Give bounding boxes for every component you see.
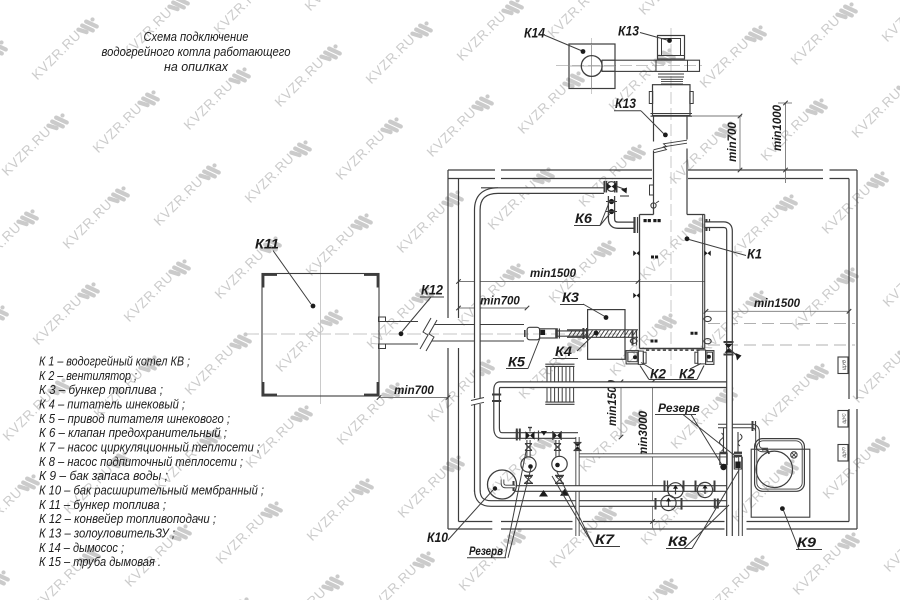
svg-text:на опилках: на опилках bbox=[164, 59, 228, 74]
svg-text:К2: К2 bbox=[650, 367, 666, 382]
svg-text:К 5 – привод питателя шнеково: К 5 – привод питателя шнекового ; bbox=[39, 412, 230, 426]
svg-text:К12: К12 bbox=[421, 283, 443, 298]
svg-text:К10: К10 bbox=[427, 530, 448, 545]
svg-text:К 10 – бак расширительный мем: К 10 – бак расширительный мембранный ; bbox=[39, 483, 264, 497]
svg-text:min1500: min1500 bbox=[530, 268, 577, 280]
svg-text:водогрейного котла работающего: водогрейного котла работающего bbox=[102, 44, 291, 59]
svg-text:К 3 – бункер топлива ;: К 3 – бункер топлива ; bbox=[39, 383, 163, 397]
svg-text:К3: К3 bbox=[562, 290, 580, 305]
svg-text:К5: К5 bbox=[508, 355, 526, 370]
svg-text:К13: К13 bbox=[618, 24, 639, 39]
svg-text:Резерв: Резерв bbox=[469, 544, 503, 558]
svg-text:К2: К2 bbox=[679, 367, 695, 382]
svg-text:Резерв: Резерв bbox=[658, 401, 700, 415]
svg-text:min1500: min1500 bbox=[754, 298, 801, 310]
svg-text:К6: К6 bbox=[575, 211, 593, 226]
svg-text:К 8 – насос подпиточный тепло: К 8 – насос подпиточный теплосети ; bbox=[39, 455, 243, 469]
svg-text:К7: К7 bbox=[595, 532, 616, 547]
svg-text:К11: К11 bbox=[255, 237, 279, 252]
svg-text:К 9 – бак запаса воды ;: К 9 – бак запаса воды ; bbox=[39, 469, 168, 483]
svg-text:К14: К14 bbox=[524, 26, 545, 41]
svg-text:К 7 – насос циркуляционный те: К 7 – насос циркуляционный теплосети ; bbox=[39, 440, 260, 454]
svg-text:К13: К13 bbox=[615, 96, 636, 111]
svg-text:К 11 – бункер топлива ;: К 11 – бункер топлива ; bbox=[39, 498, 166, 512]
svg-text:К 4 – питатель шнековый ;: К 4 – питатель шнековый ; bbox=[39, 397, 185, 411]
svg-text:К 1 – водогрейный котел КВ ;: К 1 – водогрейный котел КВ ; bbox=[39, 355, 190, 369]
svg-text:ЩУС: ЩУС bbox=[842, 413, 847, 424]
svg-text:К 6 – клапан предохранительны: К 6 – клапан предохранительный ; bbox=[39, 426, 227, 440]
svg-text:К4: К4 bbox=[555, 344, 573, 359]
svg-text:min700: min700 bbox=[480, 296, 520, 308]
svg-text:min3000: min3000 bbox=[638, 410, 650, 457]
svg-text:min700: min700 bbox=[394, 385, 434, 397]
svg-text:Схема подключение: Схема подключение bbox=[144, 29, 249, 44]
svg-text:К 2 – вентилятор ;: К 2 – вентилятор ; bbox=[39, 369, 137, 383]
svg-text:К 12 – конвейер топливоподачи: К 12 – конвейер топливоподачи ; bbox=[39, 512, 216, 526]
svg-text:ЩУВ: ЩУВ bbox=[842, 360, 847, 370]
svg-text:min700: min700 bbox=[727, 122, 739, 162]
svg-text:К8: К8 bbox=[668, 534, 688, 549]
svg-text:min1000: min1000 bbox=[772, 104, 784, 151]
svg-text:К9: К9 bbox=[797, 535, 817, 550]
svg-text:ЩУП: ЩУП bbox=[842, 447, 847, 458]
svg-text:К 14 – дымосос ;: К 14 – дымосос ; bbox=[39, 541, 124, 555]
svg-text:К 15 – труба дымовая .: К 15 – труба дымовая . bbox=[39, 555, 161, 569]
svg-text:К 13 – золоуловительЗУ ;: К 13 – золоуловительЗУ ; bbox=[39, 526, 175, 540]
svg-text:К1: К1 bbox=[747, 247, 762, 262]
